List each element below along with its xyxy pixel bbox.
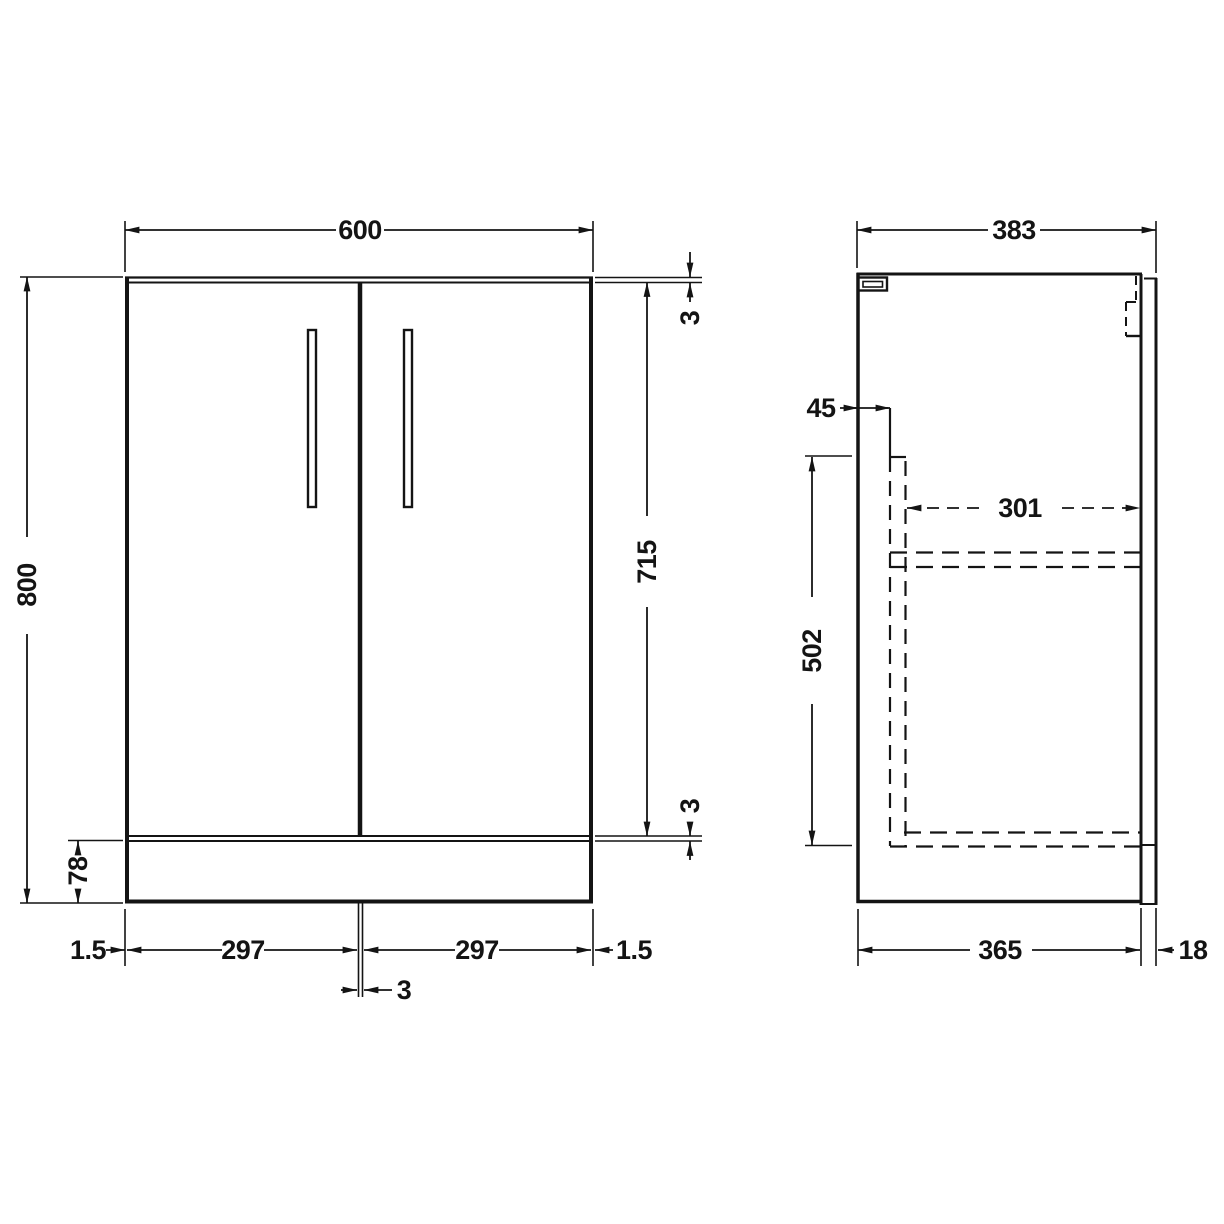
side-section-view: 383 45 301 502	[797, 215, 1208, 966]
dim-top-gap: 3	[675, 252, 705, 325]
side-inner-cavity	[890, 408, 1156, 847]
front-cabinet-outline	[125, 277, 593, 903]
technical-drawing-canvas: 600 800 78 715	[0, 0, 1224, 1224]
left-door-handle	[308, 330, 316, 507]
side-bottom-dims: 365 18	[858, 908, 1208, 966]
right-door-handle	[404, 330, 412, 507]
dim-bottom-gap: 3	[675, 798, 705, 860]
dim-overall-width: 600	[125, 215, 593, 272]
rail-inner	[863, 282, 883, 288]
dim-label-top-gap: 3	[675, 310, 705, 325]
dim-label-bottom-gap: 3	[675, 798, 705, 813]
dim-front-offset: 45	[806, 393, 890, 423]
dim-label-carcass-depth: 365	[978, 935, 1022, 965]
side-top-rail	[859, 278, 888, 291]
dim-label-door-height: 715	[632, 540, 662, 584]
dim-internal-depth: 301	[907, 493, 1140, 523]
dim-label-back-panel-thickness: 18	[1178, 935, 1208, 965]
dim-label-right-inset: 1.5	[616, 935, 653, 965]
front-elevation-view: 600 800 78 715	[12, 215, 705, 1005]
dim-label-overall-height: 800	[12, 563, 42, 607]
dim-label-internal-height: 502	[797, 629, 827, 673]
dim-internal-height: 502	[797, 456, 852, 846]
side-carcass-outline	[857, 273, 1158, 905]
dim-label-center-gap: 3	[397, 975, 412, 1005]
dim-label-left-door-width: 297	[221, 935, 265, 965]
dim-overall-depth: 383	[857, 215, 1156, 273]
dim-label-overall-width: 600	[338, 215, 382, 245]
dim-label-internal-depth: 301	[998, 493, 1042, 523]
dim-label-right-door-width: 297	[455, 935, 499, 965]
dim-plinth-height: 78	[63, 841, 123, 904]
front-bottom-dims: 1.5 297 297 1.5 3	[70, 903, 653, 1005]
dim-label-left-inset: 1.5	[70, 935, 107, 965]
dim-label-plinth-height: 78	[63, 856, 93, 886]
dim-label-overall-depth: 383	[992, 215, 1036, 245]
dim-door-height: 715	[595, 278, 702, 842]
side-back-notch	[1126, 276, 1141, 336]
vanity-unit-drawing: 600 800 78 715	[0, 0, 1224, 1224]
dim-label-front-offset: 45	[806, 393, 836, 423]
dim-overall-height: 800	[12, 277, 123, 903]
